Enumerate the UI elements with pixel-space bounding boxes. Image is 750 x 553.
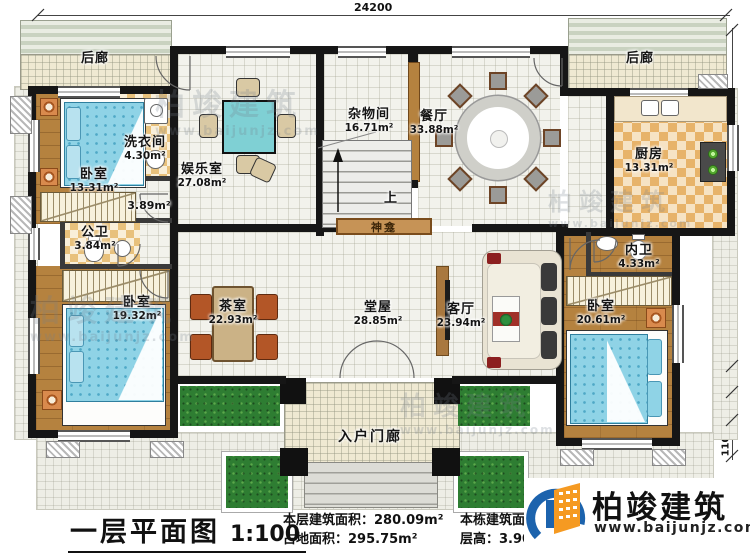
nightstand (40, 98, 58, 116)
chair (489, 72, 507, 90)
wall-segment (606, 88, 614, 230)
stat-label: 本层建筑面积： (283, 513, 374, 528)
stat-label: 层高： (460, 532, 499, 547)
stat-label: 占地面积： (283, 532, 348, 547)
window (58, 86, 120, 98)
room-label-corridor: 3.89m² (122, 200, 176, 212)
double-bed (62, 304, 166, 426)
grass-strip-left (180, 386, 280, 426)
nightstand (646, 308, 666, 328)
window (672, 305, 684, 363)
wall-segment (60, 264, 172, 269)
nightstand (40, 168, 58, 186)
wall-segment (60, 218, 65, 269)
stat-value: 280.09m² (374, 513, 443, 528)
window (727, 125, 739, 171)
entry-steps (304, 462, 438, 508)
grass-strip-right (458, 386, 530, 426)
room-label-bedroom-top-left: 卧室13.31m² (62, 168, 126, 194)
shrine-cabinet: 神龛 (336, 218, 432, 235)
wall-segment (408, 46, 418, 62)
porch-column (432, 448, 460, 476)
wall-segment (170, 46, 178, 438)
wall-segment (178, 376, 286, 384)
chair (277, 114, 296, 138)
wall-segment (586, 232, 591, 276)
window (452, 46, 530, 58)
floor-plan-canvas: 24200 11400 600 900 1100 (0, 0, 750, 553)
shrine-label: 神龛 (371, 221, 397, 234)
room-label-storage: 杂物间16.71m² (333, 108, 405, 134)
chair (543, 129, 561, 147)
toilet-tank-icon (632, 234, 645, 240)
chair (190, 334, 212, 360)
ac-unit-icon (10, 196, 32, 234)
dimension-line-top (38, 15, 730, 16)
room-label-private-bath: 内卫4.33m² (608, 244, 670, 270)
grass-bed-right (454, 452, 528, 512)
wall-segment (560, 46, 568, 96)
room-label-back-porch-left: 后廊 (65, 52, 125, 67)
room-label-entertainment: 娱乐室27.08m² (164, 163, 240, 189)
stats-column-1: 本层建筑面积：280.09m² 占地面积：295.75m² (283, 511, 443, 549)
ac-unit-icon (652, 449, 686, 466)
room-label-entry-porch: 入户门廊 (310, 430, 430, 446)
window (226, 46, 290, 58)
room-label-public-bath: 公卫3.84m² (66, 226, 124, 252)
ac-unit-icon (150, 441, 184, 458)
staircase (322, 140, 412, 228)
wall-segment (452, 376, 560, 384)
chair (236, 78, 260, 97)
chair (199, 114, 218, 138)
double-bed (566, 330, 668, 426)
nightstand (42, 390, 62, 410)
room-label-dining: 餐厅33.88m² (402, 110, 466, 136)
wall-segment (472, 224, 568, 232)
room-label-bedroom-bottom-right: 卧室20.61m² (566, 300, 636, 326)
window (28, 318, 40, 374)
room-label-tea-room: 茶室22.93m² (203, 300, 263, 326)
brand-logo: 柏竣建筑 www.baijunjz.com (524, 478, 744, 550)
mahjong-table (222, 100, 276, 154)
chair (489, 186, 507, 204)
coffee-table (492, 296, 520, 342)
room-label-main-hall: 堂屋28.85m² (338, 301, 418, 327)
sink-icon (661, 100, 679, 116)
room-label-living-room: 客厅23.94m² (426, 303, 496, 329)
room-label-kitchen: 厨房13.31m² (616, 148, 682, 174)
room-label-laundry: 洗衣间4.30m² (116, 136, 174, 162)
chair (256, 334, 278, 360)
washer-door-icon (150, 104, 163, 117)
porch-column (280, 448, 308, 476)
ac-unit-icon (560, 449, 594, 466)
window (338, 46, 386, 58)
room-label-bedroom-bottom-left: 卧室19.32m² (104, 296, 170, 322)
ac-unit-icon (698, 74, 728, 89)
stairs-direction-label: 上 (380, 192, 402, 207)
stove-icon (700, 142, 726, 182)
brand-logo-icon (524, 480, 588, 548)
dimension-top-width: 24200 (352, 1, 394, 14)
stat-value: 295.75m² (348, 532, 417, 547)
brand-website: www.baijunjz.com (594, 520, 750, 536)
room-label-back-porch-right: 后廊 (610, 52, 670, 67)
ac-unit-icon (10, 96, 32, 134)
plan-title: 一层平面图 (70, 510, 220, 549)
sink-icon (641, 100, 659, 116)
lazy-susan (490, 130, 508, 148)
plan-title-block: 一层平面图 1:100 (68, 510, 306, 553)
ac-unit-icon (46, 441, 80, 458)
